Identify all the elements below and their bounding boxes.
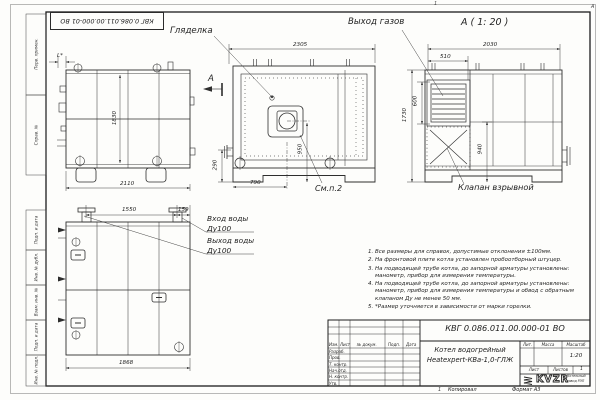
- see-note-label: См.п.2: [315, 184, 342, 193]
- row-nach-otd: Нач.отд.: [329, 368, 347, 373]
- water-inlet-label: Вход воды: [207, 214, 248, 223]
- product-name-line1: Котел водогрейный: [420, 346, 520, 354]
- zone-marker-bottom: 1: [438, 387, 441, 393]
- sheet-frame: [11, 5, 596, 394]
- dim-1830: 1830: [112, 111, 118, 125]
- note-3: 3. На подводящей трубе котла, до запорно…: [368, 266, 594, 281]
- margin-label-podp-data-2: Подп. и дата: [34, 323, 39, 352]
- zone-marker-top: 1: [434, 1, 437, 7]
- row-t-kontr: Т. контр.: [329, 362, 348, 367]
- margin-label-sprav-no: Справ. №: [34, 125, 39, 145]
- water-outlet-label: Выход воды: [207, 236, 254, 245]
- bottom-view-linework: [58, 208, 190, 355]
- technical-notes: 1. Все размеры для справок, допустимые о…: [368, 249, 594, 312]
- hdr-list: Лист: [340, 342, 350, 347]
- sheets-value: 1: [573, 367, 590, 372]
- copied-label: Копировал: [448, 387, 477, 393]
- format-label: Формат А3: [512, 387, 540, 393]
- row-utv: Утв.: [329, 381, 337, 386]
- dim-1868: 1868: [119, 360, 133, 366]
- note-1: 1. Все размеры для справок, допустимые о…: [368, 249, 594, 256]
- dim-510: 510: [440, 54, 451, 60]
- mass-header: Масса: [534, 342, 562, 347]
- front-view-linework: [203, 59, 375, 182]
- dim-159: 159: [178, 207, 189, 213]
- hdr-izm: Изм.: [329, 342, 338, 347]
- section-view-linework: [425, 63, 570, 182]
- section-arrow-letter: А: [208, 74, 214, 84]
- dim-290: 290: [212, 160, 218, 171]
- dim-950: 950: [297, 144, 303, 155]
- margin-label-podp-data-1: Подп. и дата: [34, 216, 39, 245]
- side-view-linework: [57, 62, 195, 182]
- drawing-sheet: КВГ 0.086.011.00.000-01 ВО 1 А 1 Перв. п…: [0, 0, 600, 400]
- note-4: 4. На подводящей трубе котла, до запорно…: [368, 281, 594, 303]
- sheets-header: Листов: [548, 367, 573, 372]
- dim-600: 600: [412, 96, 418, 107]
- section-view-title: А ( 1: 20 ): [461, 17, 508, 28]
- hdr-date: Дата: [406, 342, 416, 347]
- margin-label-vzam-inv: Взам. инв. №: [34, 288, 39, 316]
- logo-subtext-line2: завод РЭП: [567, 380, 584, 384]
- scale-value: 1:20: [562, 353, 590, 359]
- note-2: 2. На фронтовой плите котла установлен п…: [368, 257, 594, 264]
- hdr-sign: Подп.: [388, 342, 400, 347]
- dim-940: 940: [477, 144, 483, 155]
- water-outlet-dn-label: Ду100: [207, 246, 231, 255]
- margin-label-inv-podl: Инв. № подл.: [34, 356, 39, 385]
- lit-header: Лит.: [523, 342, 532, 347]
- margin-label-perv-primen: Перв. примен.: [34, 38, 39, 69]
- sight-glass-label: Гляделка: [170, 26, 213, 36]
- scale-header: Масштаб: [562, 342, 590, 347]
- row-prov: Пров.: [329, 355, 341, 360]
- product-name-line2: Heatexpert-КВа-1,0-ГЛЖ: [420, 356, 520, 364]
- linework-layer: [0, 0, 600, 400]
- row-razrab: Разраб.: [329, 349, 345, 354]
- title-doc-number: КВГ 0.086.011.00.000-01 ВО: [420, 323, 590, 333]
- dim-1730: 1730: [402, 108, 408, 122]
- kvzr-logo: KVZR: [536, 374, 569, 385]
- explosion-valve-label: Клапан взрывной: [458, 182, 534, 192]
- margin-label-inv-dubl: Инв. № дубл.: [34, 253, 39, 282]
- zone-marker-right: А: [591, 4, 594, 10]
- dim-2305: 2305: [293, 42, 307, 48]
- row-n-kontr: Н. контр.: [329, 374, 348, 379]
- note-5: 5. *Размер уточняется в зависимости от м…: [368, 304, 594, 311]
- dim-790: 790: [250, 180, 261, 186]
- dim-1550: 1550: [122, 207, 136, 213]
- top-stamp-doc-number: КВГ 0.086.011.00.000-01 ВО: [50, 12, 164, 30]
- gas-outlet-label: Выход газов: [348, 17, 404, 27]
- sheet-header: Лист: [520, 367, 548, 372]
- hdr-doc: № докум.: [357, 342, 377, 347]
- dim-l-star: L*: [57, 53, 63, 59]
- dim-2030: 2030: [483, 42, 497, 48]
- dim-2110: 2110: [120, 181, 134, 187]
- water-inlet-dn-label: Ду100: [207, 224, 231, 233]
